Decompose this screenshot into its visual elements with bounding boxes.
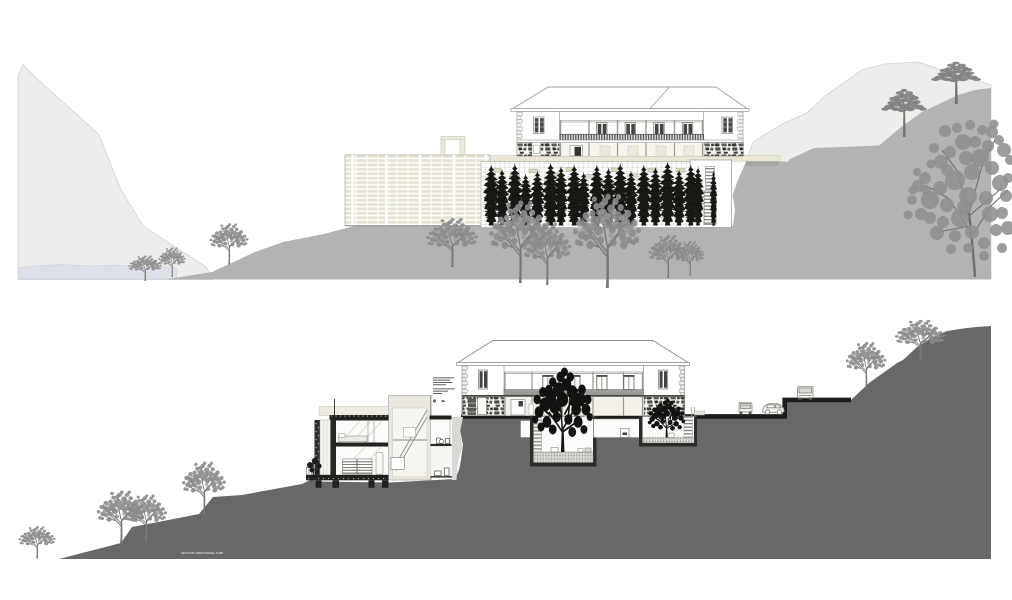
svg-text:SECCION LONGITUDINAL 1:200: SECCION LONGITUDINAL 1:200	[181, 551, 223, 555]
